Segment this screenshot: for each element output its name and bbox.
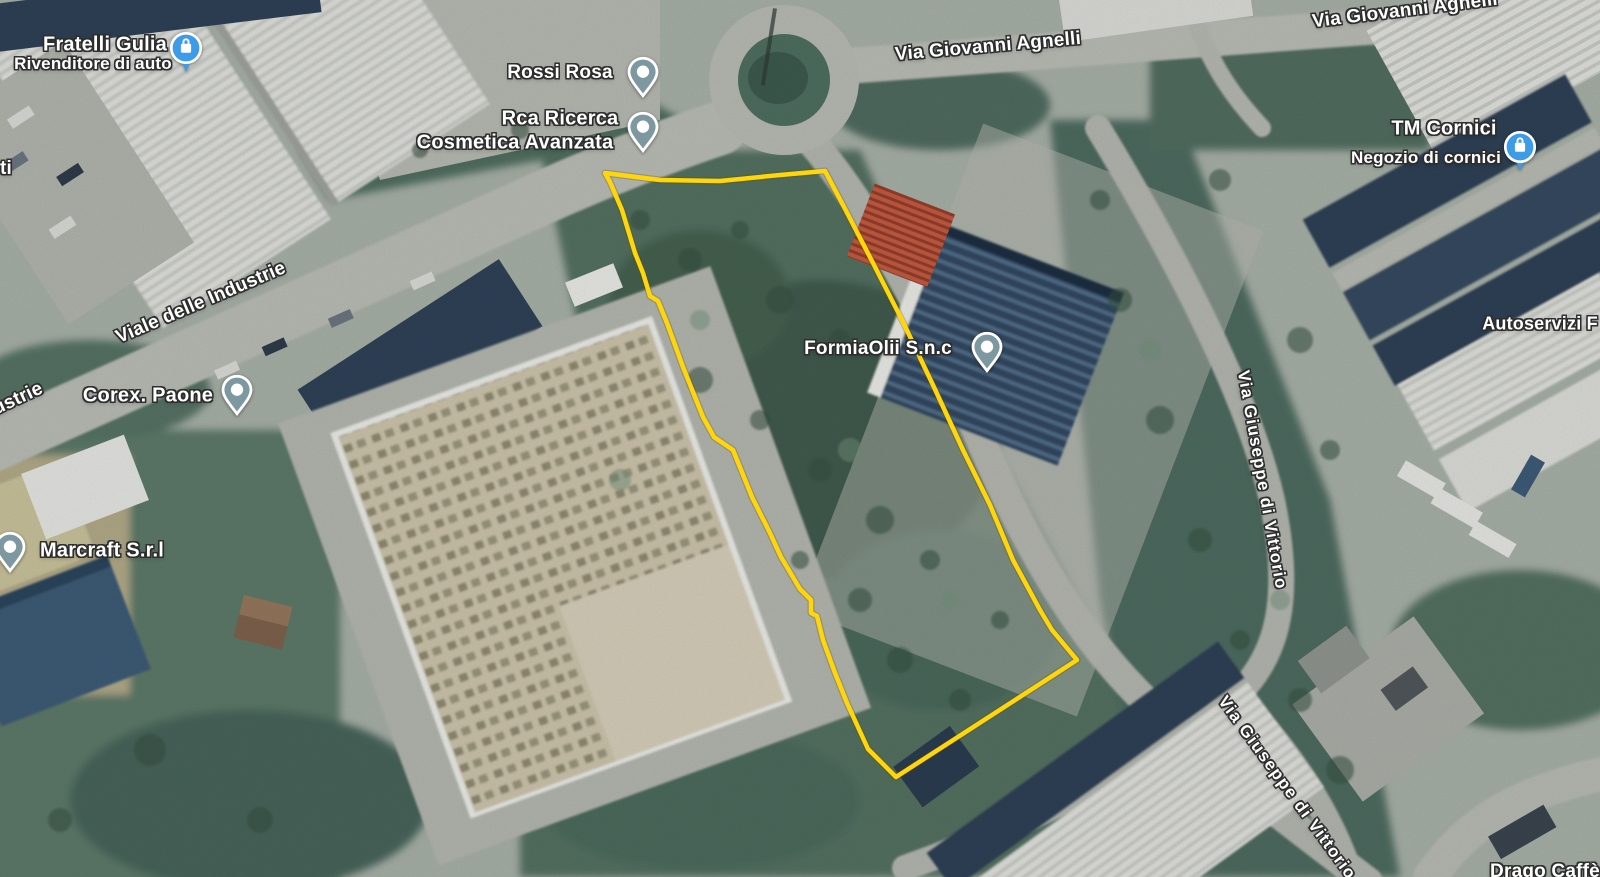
pin-marker-formia[interactable] <box>970 331 1004 373</box>
poi-label-formia[interactable]: FormiaOlii S.n.c <box>804 338 952 360</box>
map-canvas[interactable]: Fratelli Gulia Rivenditore di auto Rossi… <box>0 0 1600 877</box>
store-marker-tm-cornici[interactable] <box>1502 129 1538 174</box>
pin-dot-icon <box>637 66 649 78</box>
poi-label-rca-line2[interactable]: Cosmetica Avanzata <box>417 132 614 155</box>
pin-marker-marcraft[interactable] <box>0 531 27 573</box>
poi-label-rossi[interactable]: Rossi Rosa <box>507 62 612 84</box>
poi-label-corex[interactable]: Corex. Paone <box>83 385 213 408</box>
pin-dot-icon <box>637 121 649 133</box>
poi-label-autoservizi[interactable]: Autoservizi F <box>1482 314 1598 335</box>
store-marker-fratelli[interactable] <box>168 30 204 75</box>
satellite-imagery <box>0 0 1600 877</box>
poi-label-marcraft[interactable]: Marcraft S.r.l <box>40 540 164 563</box>
pin-marker-rca[interactable] <box>626 111 660 153</box>
poi-sublabel-fratelli: Rivenditore di auto <box>14 54 172 74</box>
poi-sublabel-tm-cornici: Negozio di cornici <box>1351 148 1501 168</box>
pin-marker-corex[interactable] <box>220 374 254 416</box>
pin-dot-icon <box>4 541 16 553</box>
street-label-partial-ti: ti <box>0 158 12 180</box>
poi-label-rca-line1[interactable]: Rca Ricerca <box>502 108 619 131</box>
pin-dot-icon <box>231 384 243 396</box>
poi-label-tm-cornici[interactable]: TM Cornici <box>1391 118 1496 141</box>
pin-dot-icon <box>981 341 993 353</box>
pin-marker-rossi[interactable] <box>626 56 660 98</box>
poi-label-drago[interactable]: Drago Caffè <box>1490 861 1600 877</box>
